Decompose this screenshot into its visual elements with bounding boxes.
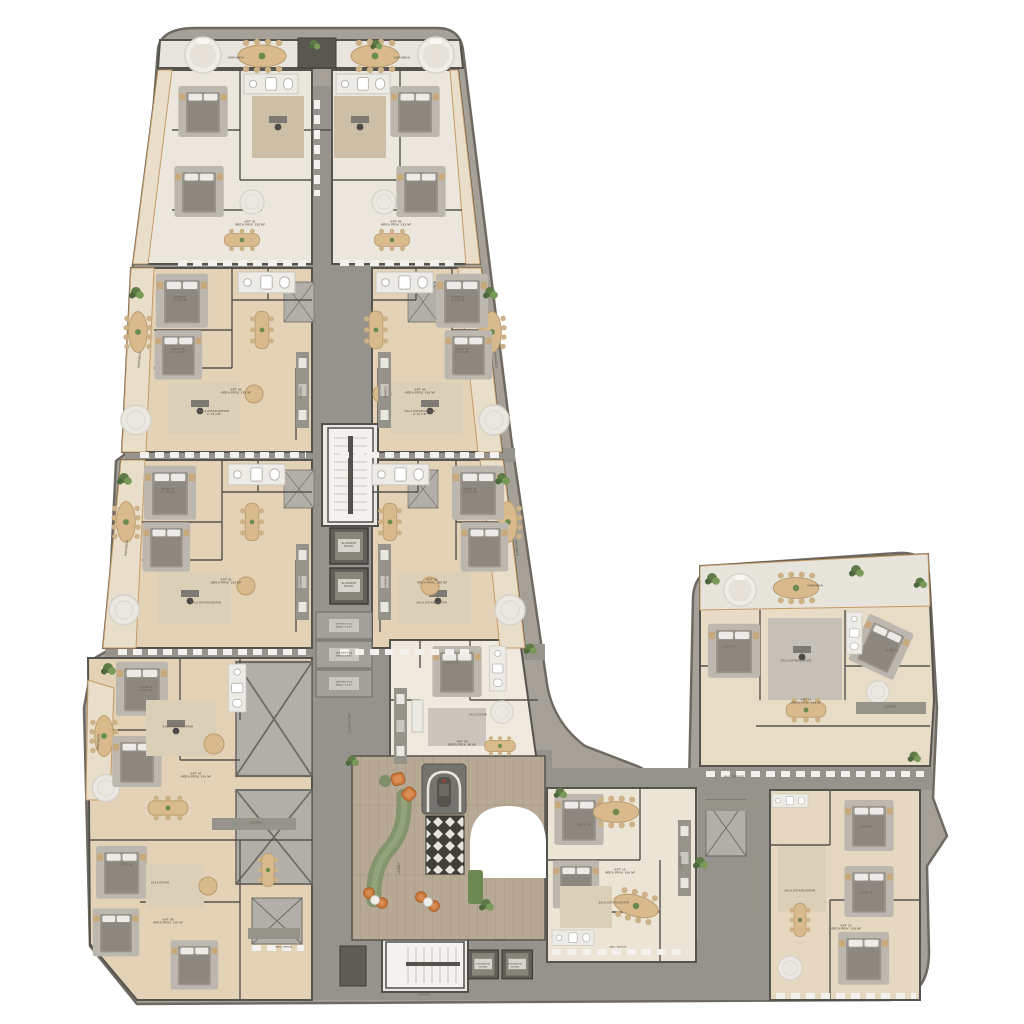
floor-plan: VARANDAVARANDAVARANDAVARANDAVARANDAVARAN… <box>0 0 1024 1024</box>
kitchen-counter <box>212 818 296 830</box>
kitchen-counter <box>700 800 764 811</box>
side-table <box>424 898 433 907</box>
rug <box>168 382 240 434</box>
car <box>437 777 451 807</box>
kitchen-island <box>412 700 423 732</box>
lobby-rug <box>426 816 464 874</box>
planter <box>468 870 483 904</box>
rug <box>778 846 826 912</box>
rug <box>390 382 462 434</box>
kitchen-counter <box>856 702 926 714</box>
rug <box>560 886 612 928</box>
round-table <box>199 877 217 895</box>
lobby <box>352 756 546 940</box>
round-table <box>421 577 439 595</box>
rug <box>768 618 842 700</box>
entry-canopy-arch <box>470 806 546 878</box>
kitchen-counter <box>248 928 300 939</box>
green-pouf <box>379 775 391 787</box>
side-table <box>371 896 380 905</box>
floor-plan-drawing <box>0 0 1024 1024</box>
kitchen-counter <box>752 856 763 912</box>
round-table <box>237 577 255 595</box>
round-table <box>204 734 224 754</box>
stair-core-lobby <box>340 938 468 992</box>
rug <box>146 864 204 908</box>
entry-driveway <box>422 764 466 814</box>
rug <box>158 572 230 624</box>
stair-core-upper <box>322 424 378 526</box>
round-table <box>245 385 263 403</box>
rug <box>428 708 486 746</box>
